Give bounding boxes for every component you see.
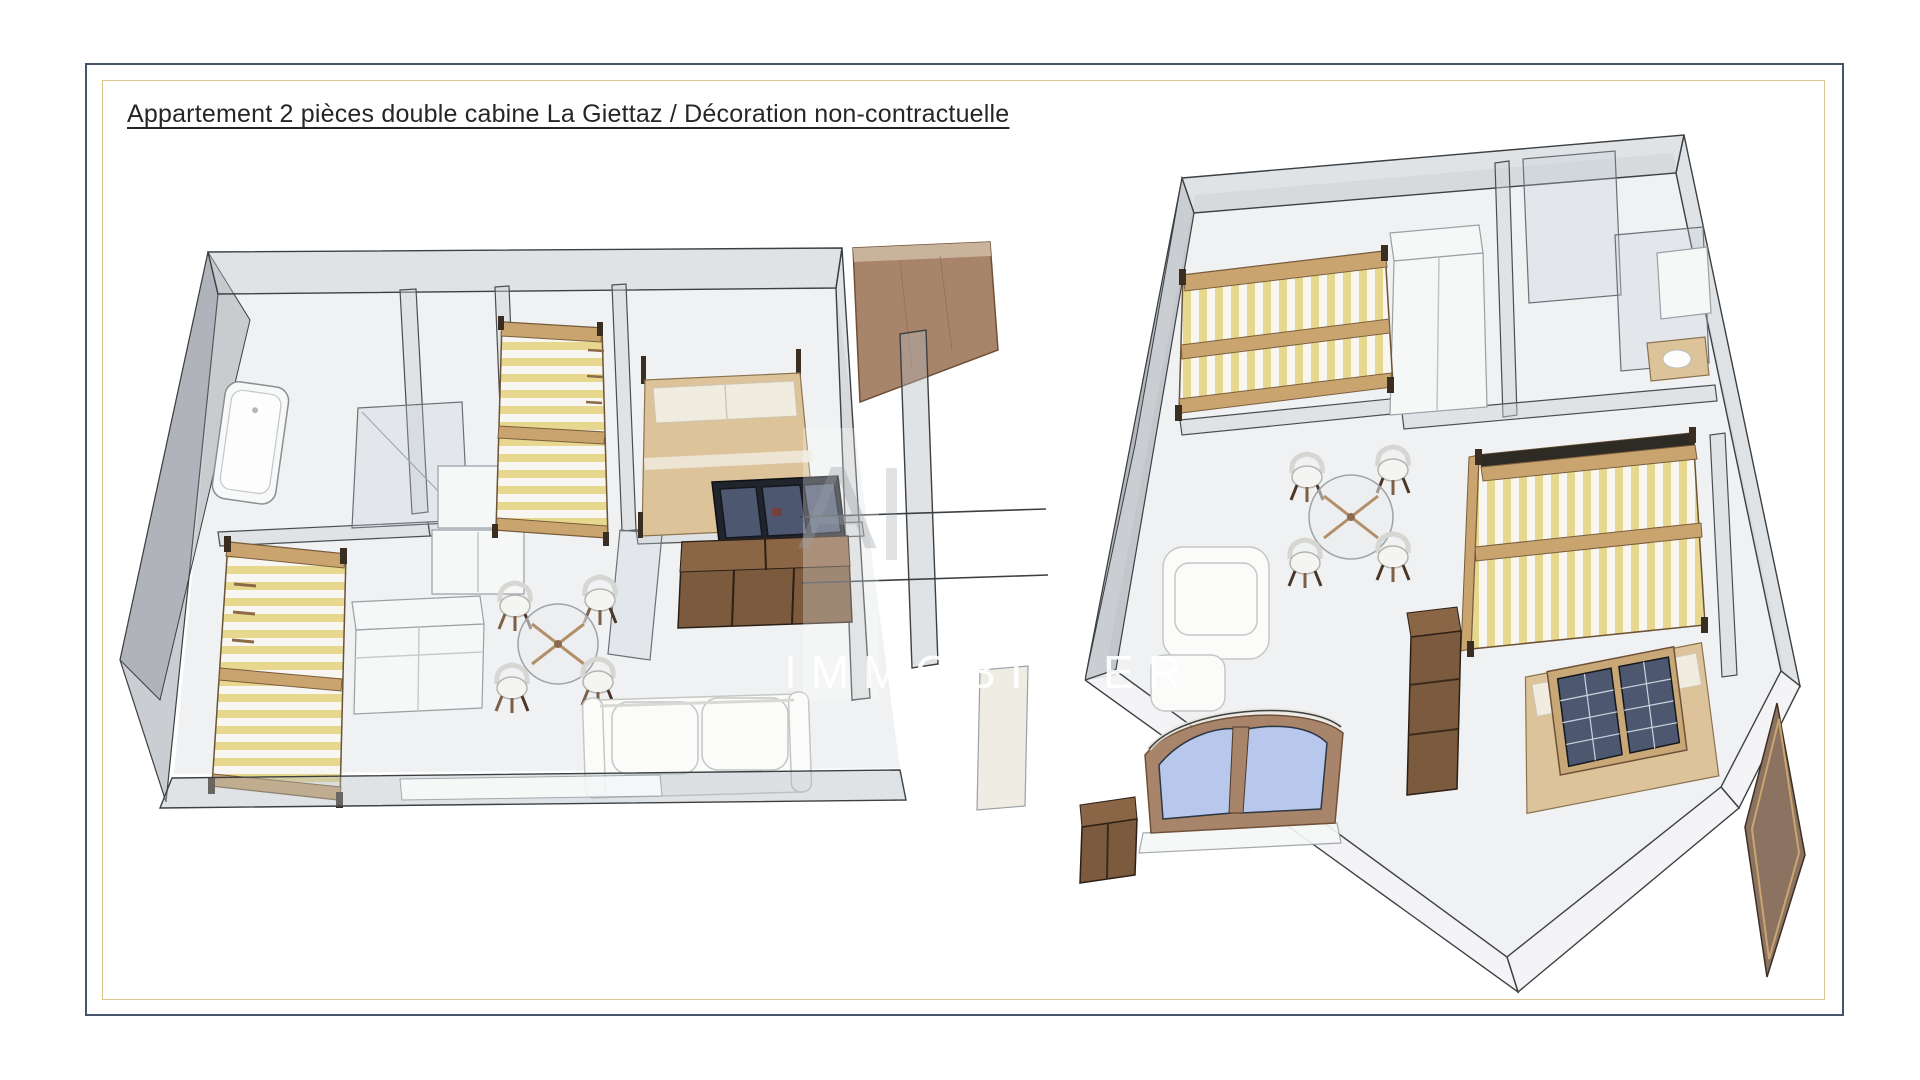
watermark-text: IMMOBILIER — [784, 645, 1195, 699]
watermark-letter-fragment — [886, 468, 897, 560]
floorplan-left — [100, 230, 1050, 870]
dark-window — [1619, 657, 1680, 754]
kitchen-counter — [352, 596, 484, 714]
floorplan-page: Appartement 2 pièces double cabine La Gi… — [0, 0, 1920, 1080]
page-title: Appartement 2 pièces double cabine La Gi… — [127, 100, 1009, 129]
dining-table — [518, 604, 598, 684]
watermark-fragment: A — [798, 440, 877, 576]
wardrobe — [1390, 225, 1487, 415]
side-wall — [900, 330, 938, 668]
dark-window — [1557, 668, 1622, 767]
cabinet — [1080, 797, 1137, 883]
bunk-bed-large — [1461, 427, 1708, 657]
floorplan-right — [1055, 115, 1855, 1025]
arched-window — [1139, 711, 1343, 853]
kitchen-column — [1407, 607, 1461, 795]
bunk-bed-left — [208, 536, 347, 808]
bunk-bed-cabin — [492, 316, 609, 546]
